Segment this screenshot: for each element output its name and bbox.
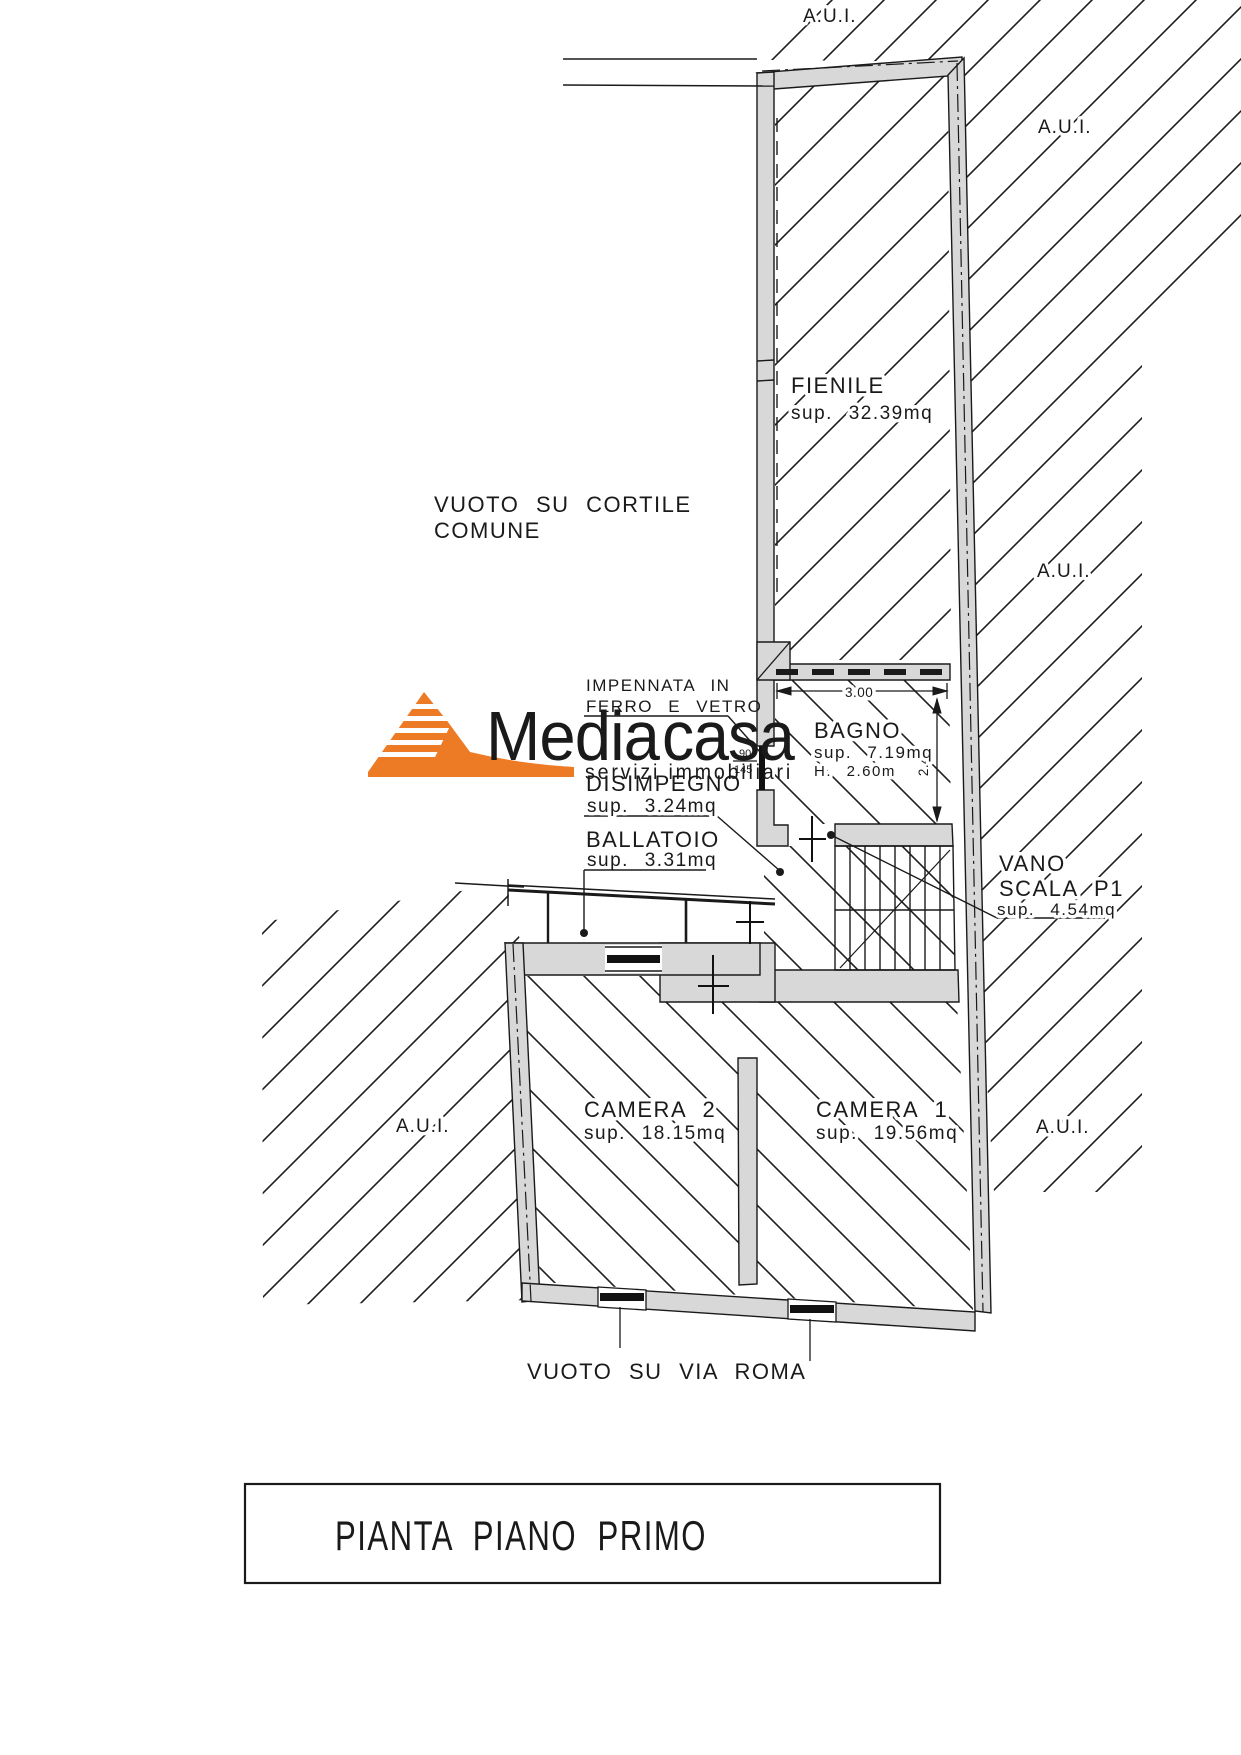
disimpegno-area: sup. 3.24mq [587,796,717,817]
vano-scala-line2: SCALA P1 [999,876,1124,901]
fienile-window-tick-1 [757,360,774,361]
aui-area-left [262,884,539,1305]
page-title: PIANTA PIANO PRIMO [335,1512,707,1559]
aui-label-right-upper: A.U.I. [1038,117,1092,138]
disimpegno-stairs-hatch [764,846,955,972]
wall-camera1-top [760,970,959,1002]
camera1-area: sup. 19.56mq [816,1123,958,1144]
window-camera2-top [605,945,662,973]
camera2-label: CAMERA 2 [584,1097,716,1122]
fienile-hatch [775,76,951,660]
floor-plan-page: 3.00 2.40 90 145 A.U.I. A.U.I. A.U.I. [0,0,1241,1755]
wall-bagno-bottom [835,824,953,846]
aui-label-top: A.U.I. [803,6,857,27]
ballatoio-area: sup. 3.31mq [587,850,717,871]
camera2-area: sup. 18.15mq [584,1123,726,1144]
wall-partition-cameras [738,1058,757,1285]
boundary-line-top-2 [563,85,774,86]
window-camera1-bottom [788,1299,836,1361]
fienile-area: sup. 32.39mq [791,403,933,424]
fienile-label: FIENILE [791,373,885,398]
bagno-label: BAGNO [814,718,901,743]
aui-label-right-mid: A.U.I. [1037,561,1091,582]
bagno-height: H. 2.60m [814,763,896,780]
aui-label-right-lower: A.U.I. [1036,1117,1090,1138]
impennata-line1: IMPENNATA IN [586,676,730,695]
vuoto-cortile-line1: VUOTO SU CORTILE [434,492,692,517]
camera1-label: CAMERA 1 [816,1097,948,1122]
vuoto-cortile-line2: COMUNE [434,518,541,543]
ballatoio-door-marker [736,901,764,944]
ballatoio-label: BALLATOIO [586,827,720,852]
logo-tagline: servizi immobiliari [585,761,793,784]
vuoto-via-roma-label: VUOTO SU VIA ROMA [527,1359,806,1384]
mediacasa-logo: Media casa servizi immobiliari [356,692,795,784]
aui-label-left: A.U.I. [396,1116,450,1137]
bagno-area: sup. 7.19mq [814,743,933,762]
fienile-window-tick-2 [757,380,774,381]
window-camera2-bottom [598,1287,646,1348]
vano-scala-line1: VANO [999,851,1066,876]
dim-bagno-width-label: 3.00 [845,685,873,700]
vano-scala-area: sup. 4.54mq [997,900,1116,919]
floor-plan-svg: 3.00 2.40 90 145 A.U.I. A.U.I. A.U.I. [0,0,1241,1755]
